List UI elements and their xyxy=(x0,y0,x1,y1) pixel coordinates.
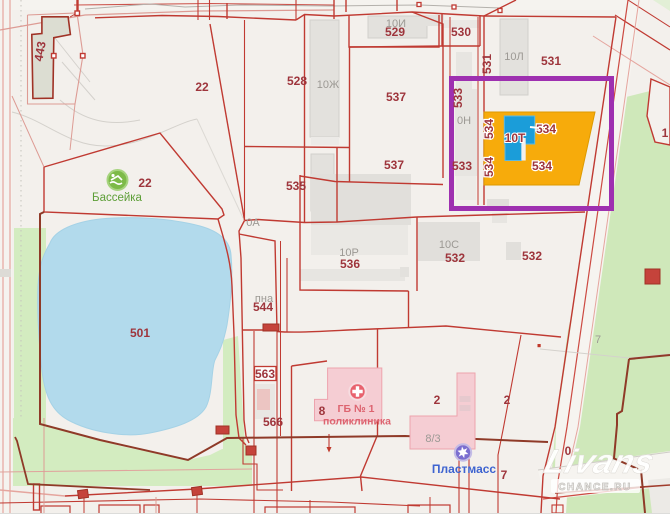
svg-text:528: 528 xyxy=(287,74,307,88)
svg-text:2: 2 xyxy=(504,393,511,407)
svg-text:0Н: 0Н xyxy=(457,115,471,127)
svg-text:8/3: 8/3 xyxy=(425,433,440,445)
svg-text:536: 536 xyxy=(340,257,360,271)
svg-text:531: 531 xyxy=(541,54,561,68)
svg-text:535: 535 xyxy=(286,179,306,193)
svg-text:22: 22 xyxy=(138,176,152,190)
svg-text:0А: 0А xyxy=(246,217,260,229)
svg-text:534: 534 xyxy=(482,119,496,139)
svg-text:7: 7 xyxy=(501,468,508,482)
svg-text:537: 537 xyxy=(384,158,404,172)
svg-text:Пластмасс: Пластмасс xyxy=(432,462,497,476)
svg-text:Livans: Livans xyxy=(540,444,658,481)
svg-text:532: 532 xyxy=(445,251,465,265)
svg-text:Бассейка: Бассейка xyxy=(92,192,143,204)
svg-text:10И: 10И xyxy=(386,18,406,30)
svg-text:10Ж: 10Ж xyxy=(317,79,339,91)
svg-text:пна: пна xyxy=(255,293,274,305)
svg-text:531: 531 xyxy=(480,54,494,74)
svg-text:537: 537 xyxy=(386,90,406,104)
svg-text:532: 532 xyxy=(522,249,542,263)
svg-text:563: 563 xyxy=(255,367,275,381)
svg-text:7: 7 xyxy=(595,334,601,346)
svg-text:10Л: 10Л xyxy=(504,51,523,63)
svg-text:533: 533 xyxy=(452,159,472,173)
svg-text:10С: 10С xyxy=(439,239,459,251)
svg-text:CHANCE.RU: CHANCE.RU xyxy=(558,482,632,493)
svg-text:566: 566 xyxy=(263,415,283,429)
svg-text:ГБ № 1: ГБ № 1 xyxy=(338,403,375,415)
svg-text:1: 1 xyxy=(662,126,669,140)
svg-text:501: 501 xyxy=(130,326,150,340)
svg-text:530: 530 xyxy=(451,25,471,39)
svg-text:534: 534 xyxy=(536,122,556,136)
svg-text:поликлиника: поликлиника xyxy=(323,416,391,428)
svg-text:534: 534 xyxy=(532,159,552,173)
svg-text:533: 533 xyxy=(451,88,465,108)
svg-text:10Т: 10Т xyxy=(505,131,526,145)
svg-text:2: 2 xyxy=(434,393,441,407)
svg-text:534: 534 xyxy=(482,157,496,177)
svg-text:22: 22 xyxy=(195,80,209,94)
